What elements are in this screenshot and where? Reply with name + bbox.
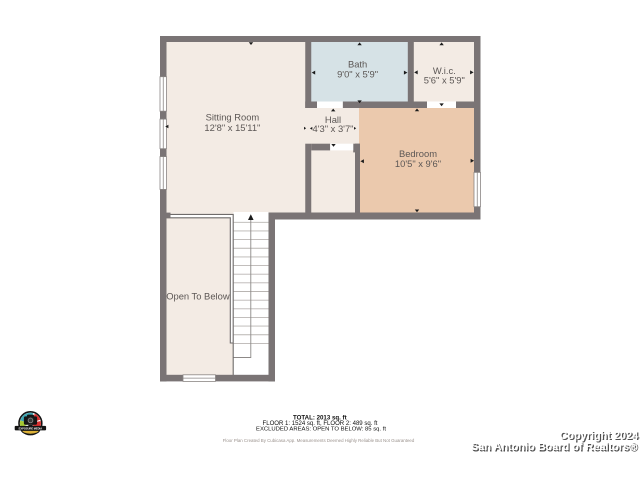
svg-text:Sitting Room: Sitting Room — [206, 112, 260, 123]
svg-text:EXPOSURE MEDIA: EXPOSURE MEDIA — [19, 426, 43, 430]
svg-text:Floor Plan Created By Cubicasa: Floor Plan Created By Cubicasa App. Meas… — [223, 438, 415, 443]
svg-text:12'8" x 15'11": 12'8" x 15'11" — [204, 122, 260, 133]
svg-text:5'6" x 5'9": 5'6" x 5'9" — [424, 75, 465, 86]
svg-text:Copyright 2024: Copyright 2024 — [560, 430, 639, 442]
svg-text:4'3" x 3'7": 4'3" x 3'7" — [313, 123, 354, 134]
svg-text:San Antonio Board of Realtors®: San Antonio Board of Realtors® — [471, 441, 637, 453]
svg-text:9'0" x 5'9": 9'0" x 5'9" — [337, 69, 378, 80]
svg-text:Open To Below: Open To Below — [166, 291, 230, 302]
svg-text:EXCLUDED AREAS: OPEN TO BELOW:: EXCLUDED AREAS: OPEN TO BELOW: 85 sq. ft — [256, 427, 386, 433]
svg-text:10'5" x 9'6": 10'5" x 9'6" — [395, 158, 441, 169]
